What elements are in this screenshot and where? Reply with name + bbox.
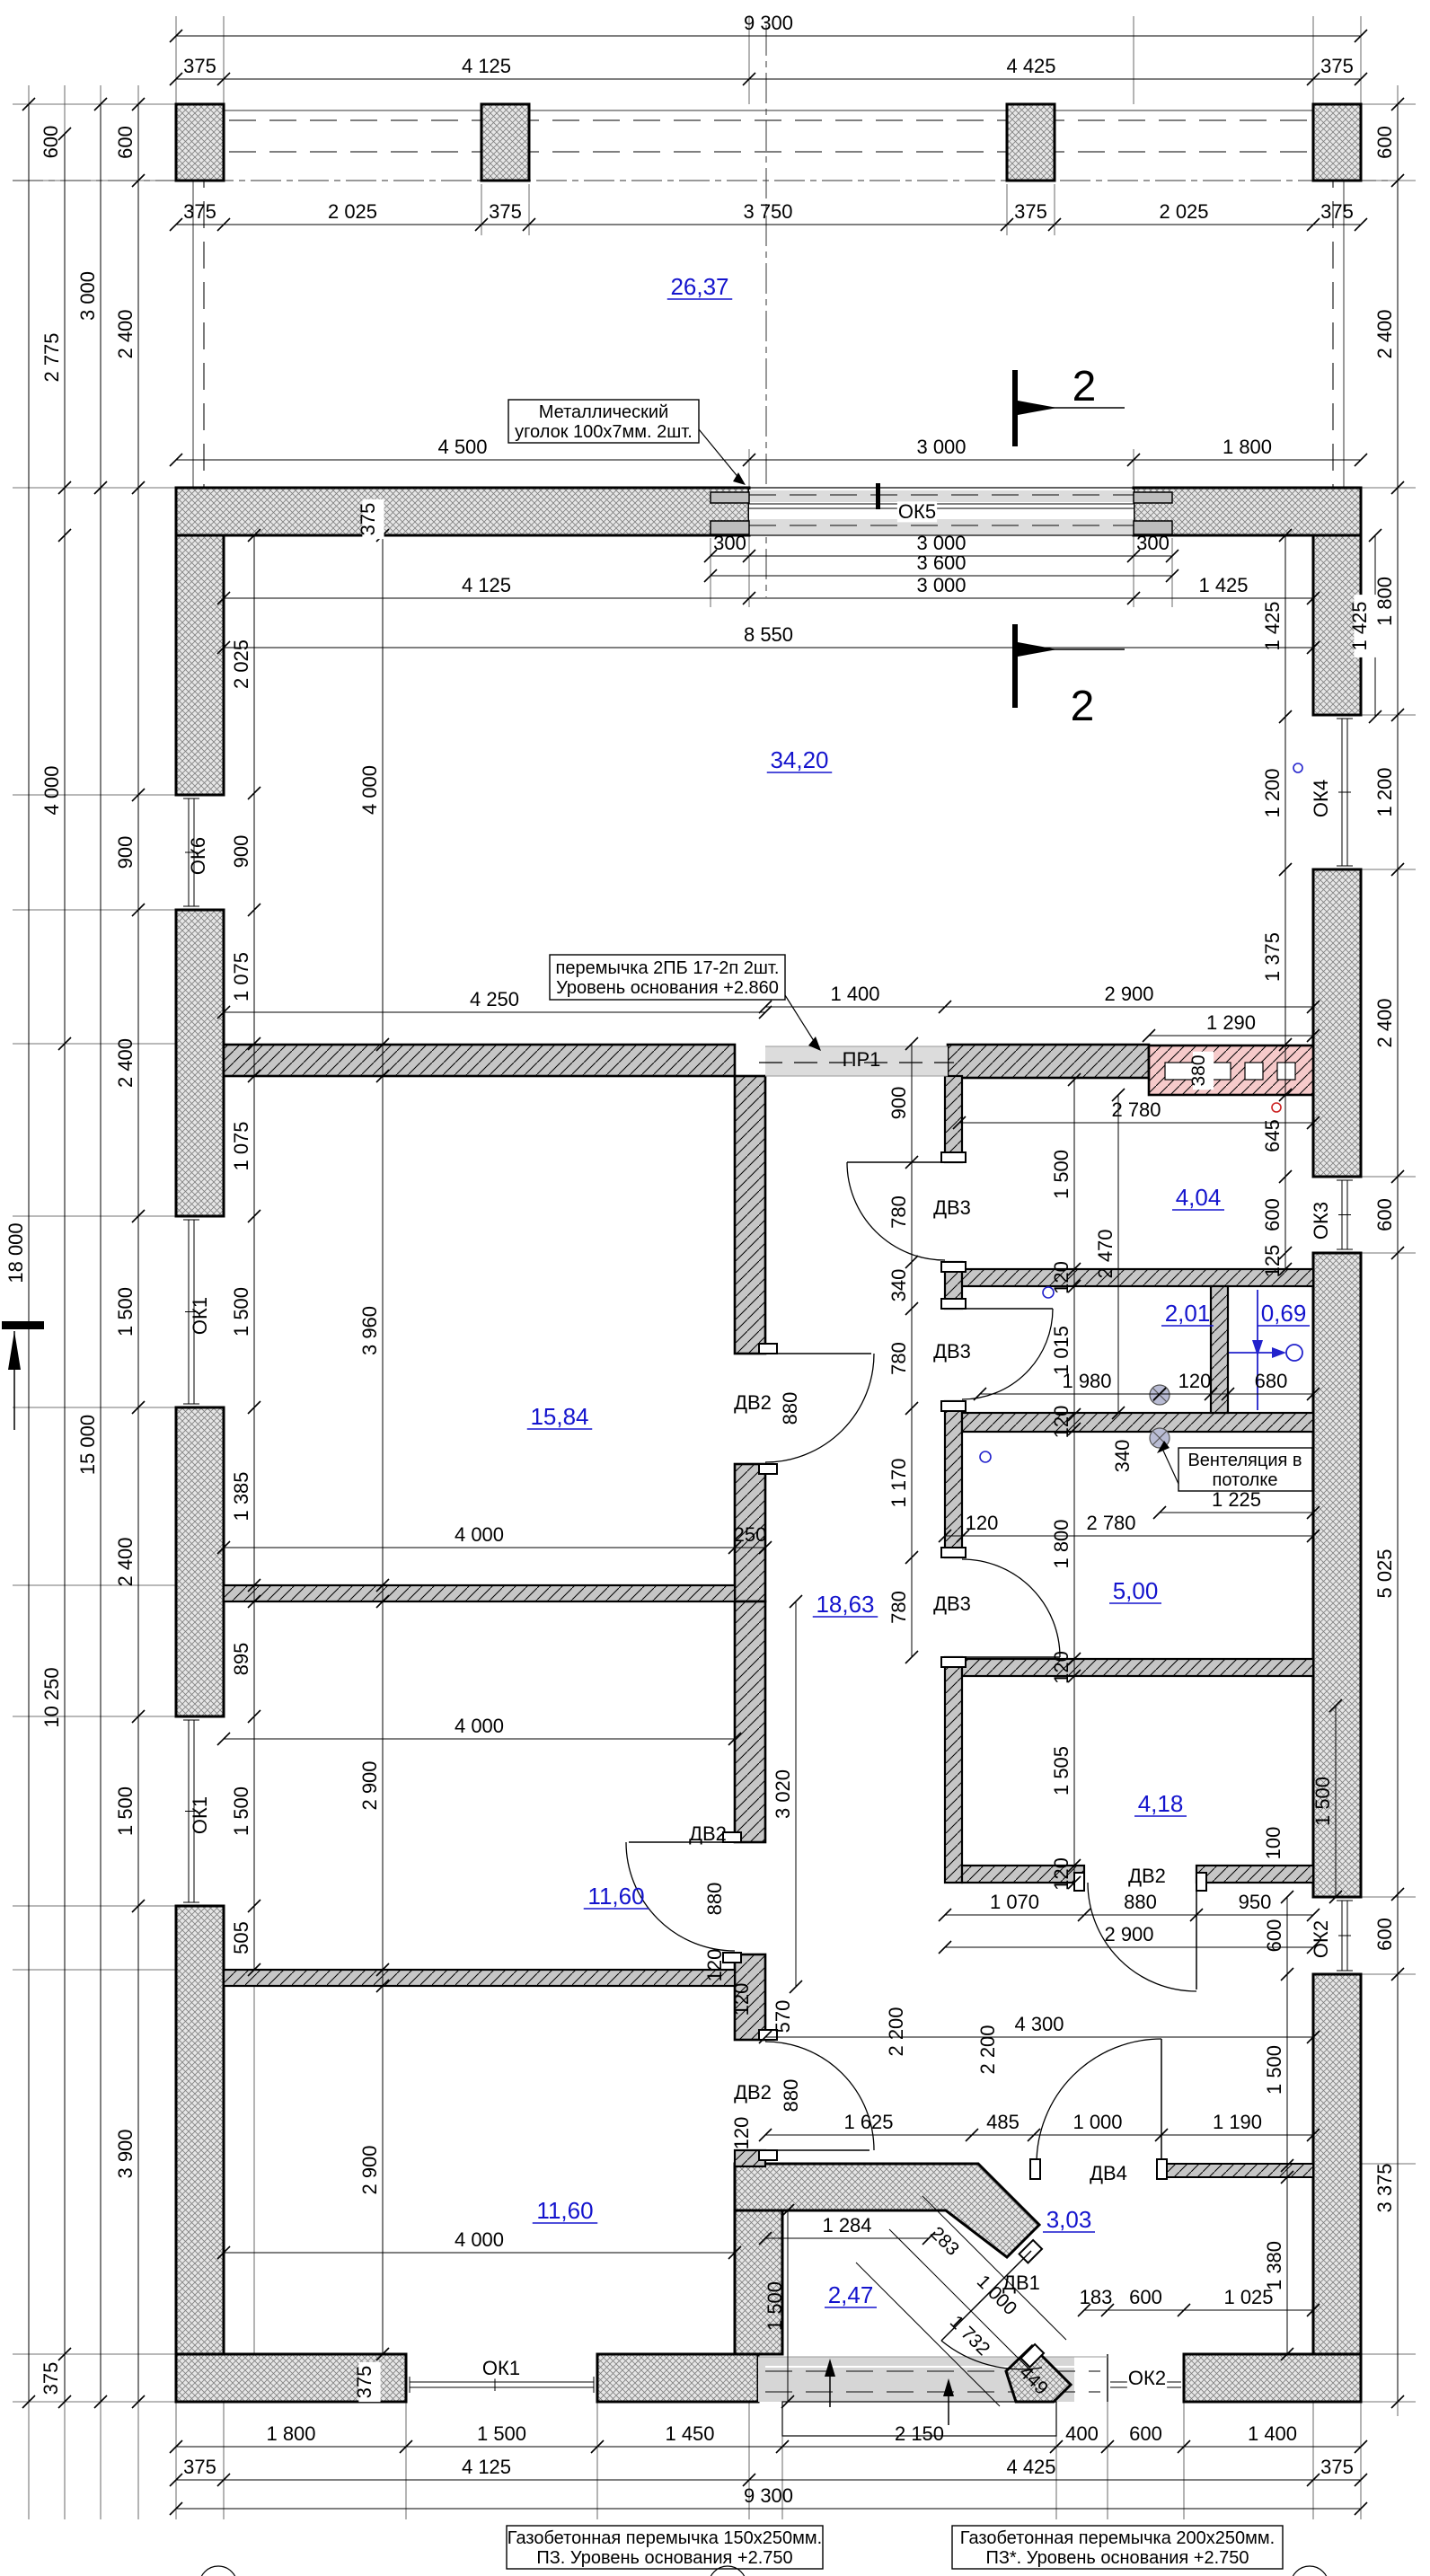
svg-text:2 900: 2 900 (358, 1760, 381, 1810)
svg-text:1 290: 1 290 (1206, 1011, 1256, 1034)
svg-text:2 775: 2 775 (40, 332, 63, 382)
svg-text:4,18: 4,18 (1138, 1790, 1184, 1817)
svg-text:ДВ3: ДВ3 (933, 1196, 971, 1219)
svg-text:2 470: 2 470 (1094, 1229, 1117, 1278)
svg-text:26,37: 26,37 (670, 273, 728, 300)
svg-text:600: 600 (1261, 1198, 1284, 1231)
svg-text:300: 300 (713, 532, 746, 554)
svg-text:8 550: 8 550 (744, 623, 793, 646)
svg-text:1 075: 1 075 (230, 1121, 252, 1170)
svg-text:4 125: 4 125 (462, 55, 511, 77)
svg-text:ДВ3: ДВ3 (933, 1340, 971, 1363)
svg-text:11,60: 11,60 (587, 1883, 644, 1910)
svg-text:900: 900 (230, 835, 252, 869)
svg-text:2 780: 2 780 (1086, 1512, 1135, 1534)
svg-text:4 000: 4 000 (455, 2228, 504, 2251)
svg-text:2 400: 2 400 (114, 1038, 137, 1088)
svg-text:3,03: 3,03 (1046, 2206, 1092, 2233)
svg-text:183: 183 (1080, 2286, 1113, 2308)
svg-text:1 225: 1 225 (1212, 1488, 1261, 1511)
svg-text:375: 375 (1014, 200, 1047, 223)
svg-text:380: 380 (1188, 1054, 1209, 1086)
svg-text:3 020: 3 020 (772, 1769, 794, 1819)
svg-text:375: 375 (1320, 2456, 1354, 2478)
svg-text:1 400: 1 400 (830, 983, 879, 1005)
svg-text:1 425: 1 425 (1198, 574, 1248, 596)
svg-text:1 000: 1 000 (1072, 2111, 1122, 2133)
svg-text:1 500: 1 500 (230, 1287, 252, 1337)
svg-text:ОК1: ОК1 (482, 2357, 520, 2379)
svg-text:2: 2 (1072, 363, 1097, 410)
svg-text:120: 120 (1050, 1857, 1072, 1891)
svg-text:1 190: 1 190 (1213, 2111, 1262, 2133)
svg-text:4 125: 4 125 (462, 574, 511, 596)
svg-text:ОК3: ОК3 (1310, 1202, 1332, 1239)
svg-text:18 000: 18 000 (4, 1222, 27, 1283)
svg-text:1 375: 1 375 (1261, 932, 1284, 982)
svg-text:1 170: 1 170 (887, 1458, 910, 1507)
svg-text:ОК1: ОК1 (189, 1297, 211, 1335)
svg-text:120: 120 (730, 1983, 753, 2016)
svg-text:1 800: 1 800 (1373, 577, 1396, 626)
svg-text:1 500: 1 500 (114, 1786, 137, 1836)
svg-text:ОК1: ОК1 (189, 1796, 211, 1834)
svg-text:Вентеляция в: Вентеляция в (1187, 1451, 1302, 1470)
svg-text:4 500: 4 500 (437, 436, 487, 458)
svg-text:1 505: 1 505 (1050, 1746, 1072, 1795)
svg-text:120: 120 (730, 2117, 753, 2150)
svg-text:0,69: 0,69 (1261, 1300, 1307, 1327)
svg-text:2 900: 2 900 (358, 2145, 381, 2194)
svg-text:3 900: 3 900 (114, 2129, 137, 2178)
svg-text:1 800: 1 800 (1223, 436, 1272, 458)
svg-text:34,20: 34,20 (770, 746, 828, 773)
svg-text:120: 120 (1050, 1406, 1072, 1439)
svg-text:3 750: 3 750 (743, 200, 792, 223)
svg-text:1 800: 1 800 (266, 2422, 315, 2445)
svg-text:895: 895 (230, 1643, 252, 1676)
svg-text:900: 900 (114, 836, 137, 869)
svg-text:1 425: 1 425 (1348, 601, 1371, 650)
svg-text:600: 600 (1373, 1198, 1396, 1231)
svg-text:3 000: 3 000 (916, 574, 966, 596)
svg-text:4 300: 4 300 (1014, 2013, 1064, 2035)
svg-text:2: 2 (1071, 683, 1095, 730)
svg-text:3 375: 3 375 (1373, 2163, 1396, 2212)
svg-text:Уровень основания +2.860: Уровень основания +2.860 (556, 978, 779, 998)
svg-text:375: 375 (183, 55, 216, 77)
svg-text:4 000: 4 000 (455, 1523, 504, 1546)
svg-text:120: 120 (1050, 1651, 1072, 1684)
svg-text:ДВ2: ДВ2 (734, 1391, 772, 1414)
svg-text:потолке: потолке (1213, 1470, 1278, 1490)
svg-text:1 500: 1 500 (1311, 1777, 1334, 1826)
svg-text:1 385: 1 385 (230, 1471, 252, 1521)
svg-text:перемычка 2ПБ 17-2п 2шт.: перемычка 2ПБ 17-2п 2шт. (556, 958, 780, 978)
svg-text:250: 250 (734, 1523, 767, 1546)
svg-text:120: 120 (966, 1512, 999, 1534)
svg-text:4 425: 4 425 (1006, 2456, 1055, 2478)
svg-text:5,00: 5,00 (1113, 1577, 1159, 1604)
svg-text:2 150: 2 150 (895, 2422, 944, 2445)
svg-text:2 900: 2 900 (1104, 983, 1153, 1005)
svg-text:9 300: 9 300 (744, 2484, 793, 2507)
svg-text:600: 600 (1373, 1918, 1396, 1951)
svg-text:18,63: 18,63 (816, 1591, 874, 1618)
svg-text:680: 680 (1255, 1370, 1288, 1392)
svg-text:880: 880 (780, 2079, 802, 2113)
svg-text:880: 880 (1124, 1891, 1157, 1913)
svg-text:4 125: 4 125 (462, 2456, 511, 2478)
svg-text:4 250: 4 250 (470, 988, 519, 1010)
svg-text:375: 375 (1320, 200, 1354, 223)
svg-text:1 625: 1 625 (843, 2111, 893, 2133)
svg-text:2,01: 2,01 (1165, 1300, 1211, 1327)
svg-text:300: 300 (1136, 532, 1170, 554)
svg-text:2 200: 2 200 (976, 2025, 999, 2074)
svg-text:ДВ3: ДВ3 (933, 1592, 971, 1615)
svg-text:950: 950 (1239, 1891, 1272, 1913)
svg-text:ДВ2: ДВ2 (1128, 1865, 1166, 1887)
svg-text:1 450: 1 450 (665, 2422, 714, 2445)
svg-text:ПЗ. Уровень основания +2.750: ПЗ. Уровень основания +2.750 (536, 2548, 792, 2568)
svg-text:1 500: 1 500 (1050, 1150, 1072, 1199)
svg-text:ОК4: ОК4 (1310, 780, 1332, 817)
svg-text:ДВ2: ДВ2 (689, 1822, 727, 1845)
svg-text:880: 880 (779, 1392, 801, 1425)
svg-text:340: 340 (887, 1269, 910, 1302)
svg-text:4 000: 4 000 (40, 765, 63, 815)
svg-text:600: 600 (114, 126, 137, 159)
svg-text:2 900: 2 900 (1104, 1923, 1153, 1945)
svg-text:1 500: 1 500 (230, 1786, 252, 1836)
svg-text:375: 375 (357, 503, 379, 536)
svg-text:100: 100 (1262, 1827, 1284, 1860)
svg-text:900: 900 (887, 1087, 910, 1120)
svg-text:Металлический: Металлический (539, 402, 669, 422)
svg-text:1 425: 1 425 (1261, 601, 1284, 650)
svg-text:2 400: 2 400 (1373, 998, 1396, 1047)
svg-text:3 960: 3 960 (358, 1306, 381, 1355)
svg-text:4,04: 4,04 (1176, 1184, 1222, 1211)
svg-text:1 500: 1 500 (1263, 2045, 1285, 2095)
svg-text:2,47: 2,47 (828, 2281, 874, 2308)
svg-text:1 284: 1 284 (822, 2214, 871, 2236)
svg-text:ПР1: ПР1 (843, 1048, 881, 1071)
svg-text:1 070: 1 070 (990, 1891, 1039, 1913)
svg-text:375: 375 (40, 2362, 62, 2395)
svg-text:780: 780 (887, 1195, 910, 1229)
svg-text:1 500: 1 500 (114, 1287, 137, 1337)
svg-text:880: 880 (703, 1883, 726, 1916)
svg-text:10 250: 10 250 (40, 1667, 63, 1727)
svg-text:4 425: 4 425 (1006, 55, 1055, 77)
svg-text:600: 600 (1129, 2286, 1162, 2308)
svg-text:600: 600 (1373, 126, 1396, 159)
svg-text:780: 780 (887, 1342, 910, 1375)
svg-text:600: 600 (1129, 2422, 1162, 2445)
svg-text:125: 125 (1261, 1245, 1284, 1278)
svg-text:485: 485 (986, 2111, 1020, 2133)
svg-text:1 800: 1 800 (1050, 1519, 1072, 1568)
svg-text:15,84: 15,84 (530, 1403, 588, 1430)
svg-text:375: 375 (183, 200, 216, 223)
svg-text:3 000: 3 000 (76, 271, 99, 321)
svg-text:ОК6: ОК6 (187, 837, 209, 875)
svg-text:4 000: 4 000 (455, 1715, 504, 1737)
svg-text:1 075: 1 075 (230, 952, 252, 1001)
svg-text:1 015: 1 015 (1050, 1326, 1072, 1375)
svg-text:120: 120 (1050, 1261, 1072, 1294)
svg-text:ДВ4: ДВ4 (1090, 2162, 1127, 2184)
svg-text:375: 375 (1320, 55, 1354, 77)
svg-text:375: 375 (183, 2456, 216, 2478)
svg-text:5 025: 5 025 (1373, 1548, 1396, 1598)
svg-text:600: 600 (40, 126, 62, 159)
svg-text:4 000: 4 000 (358, 765, 381, 815)
svg-text:Газобетонная перемычка 150х250: Газобетонная перемычка 150х250мм. (508, 2528, 822, 2548)
svg-text:Газобетонная перемычка 200х250: Газобетонная перемычка 200х250мм. (960, 2528, 1275, 2548)
svg-text:1 500: 1 500 (477, 2422, 526, 2445)
svg-text:2 025: 2 025 (328, 200, 377, 223)
svg-text:340: 340 (1111, 1440, 1134, 1473)
svg-text:2 400: 2 400 (1373, 309, 1396, 358)
svg-text:1 400: 1 400 (1248, 2422, 1297, 2445)
svg-text:ДВ1: ДВ1 (1002, 2272, 1040, 2294)
svg-text:15 000: 15 000 (76, 1415, 99, 1475)
svg-text:2 780: 2 780 (1111, 1098, 1161, 1121)
svg-text:3 600: 3 600 (916, 551, 966, 574)
svg-text:ОК5: ОК5 (898, 500, 936, 523)
svg-text:400: 400 (1065, 2422, 1099, 2445)
svg-text:505: 505 (230, 1921, 252, 1954)
svg-text:2 025: 2 025 (1159, 200, 1208, 223)
svg-text:375: 375 (489, 200, 522, 223)
svg-text:570: 570 (772, 2000, 794, 2033)
svg-text:3 000: 3 000 (916, 436, 966, 458)
svg-text:ОК2: ОК2 (1128, 2367, 1166, 2389)
svg-text:645: 645 (1261, 1119, 1284, 1152)
svg-text:2 025: 2 025 (230, 640, 252, 689)
svg-text:1 500: 1 500 (764, 2281, 786, 2331)
svg-text:120: 120 (1178, 1370, 1212, 1392)
svg-text:1 200: 1 200 (1373, 767, 1396, 816)
svg-text:ПЗ*. Уровень основания +2.750: ПЗ*. Уровень основания +2.750 (985, 2548, 1249, 2568)
svg-text:780: 780 (887, 1591, 910, 1624)
svg-text:2 200: 2 200 (885, 2007, 907, 2056)
svg-text:уголок 100х7мм. 2шт.: уголок 100х7мм. 2шт. (515, 422, 693, 442)
svg-text:2 400: 2 400 (114, 309, 137, 358)
svg-text:375: 375 (353, 2366, 375, 2399)
svg-text:1 380: 1 380 (1263, 2241, 1285, 2290)
svg-text:2 400: 2 400 (114, 1537, 137, 1586)
svg-text:11,60: 11,60 (536, 2197, 593, 2224)
svg-text:ДВ2: ДВ2 (734, 2081, 772, 2104)
svg-text:120: 120 (703, 1949, 726, 1982)
svg-text:ОК2: ОК2 (1310, 1920, 1332, 1958)
svg-text:1 200: 1 200 (1261, 768, 1284, 817)
svg-text:600: 600 (1263, 1919, 1285, 1953)
svg-text:9 300: 9 300 (744, 12, 793, 34)
